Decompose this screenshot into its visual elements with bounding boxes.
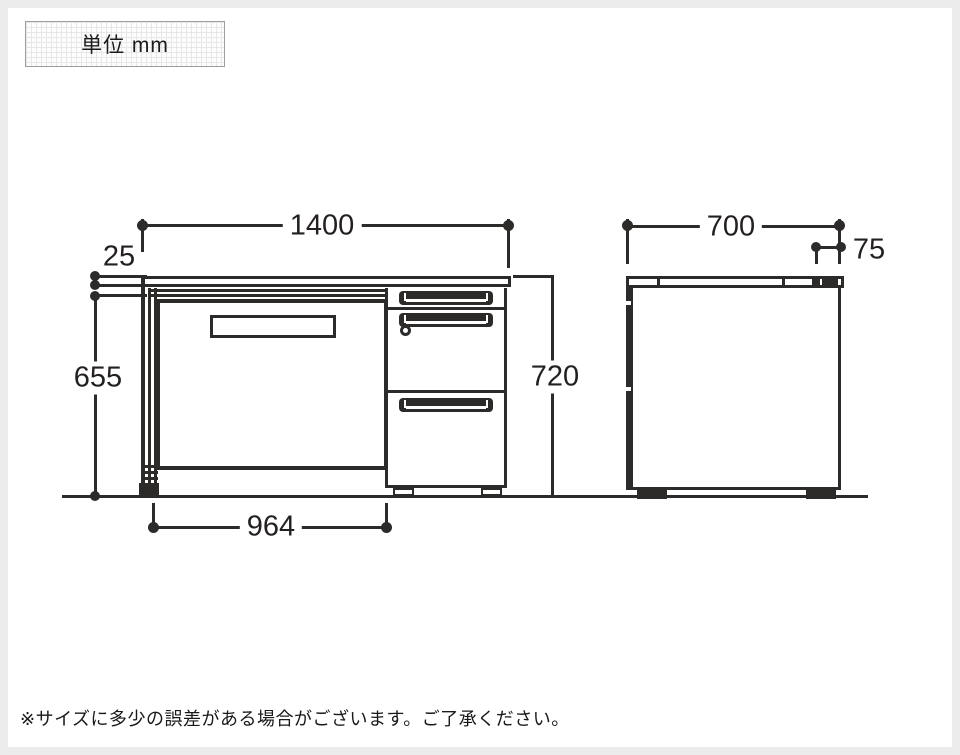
dim-964-dot-left [148, 522, 159, 533]
unit-label: 単位 mm [81, 29, 169, 59]
dim-964-label: 964 [240, 512, 302, 543]
handle-grip-slot [406, 299, 486, 302]
side-panel-back-edge [838, 288, 841, 490]
side-panel-front-edge [626, 288, 633, 490]
dim-720-label: 720 [528, 361, 582, 394]
handle-grip-slot [406, 406, 486, 409]
drawer-divider-2 [385, 390, 507, 393]
drawer-unit-right-edge [504, 288, 507, 488]
leg-outer-edge [141, 277, 145, 497]
panel-joint-notch [626, 387, 631, 391]
side-foot-left [637, 490, 667, 499]
dim-964-dot-right [381, 522, 392, 533]
floor-line [62, 495, 868, 498]
drawer-handle-3 [399, 398, 493, 412]
dim-75-dot-right [836, 242, 846, 252]
cable-slot [210, 315, 336, 338]
desktop-joint-2 [782, 276, 785, 288]
leg-adjuster-rung-2 [141, 471, 158, 474]
drawer-unit-left-edge [385, 288, 388, 488]
desktop-front [142, 276, 511, 287]
dim-700-ext-left [626, 219, 629, 264]
side-foot-right [806, 490, 836, 499]
drawer-handle-1 [399, 291, 493, 305]
panel-joint-notch [626, 301, 631, 305]
dim-25-label: 25 [101, 243, 137, 272]
rail-bottom-line [150, 294, 387, 297]
back-edge-slit [820, 279, 822, 285]
dim-75-label: 75 [851, 236, 887, 265]
dim-720-top-tick [513, 275, 554, 278]
dim-25-leader-top [95, 275, 147, 278]
dim-75-ext-left [815, 246, 818, 264]
handle-grip-slot [406, 321, 486, 324]
dim-1400-label: 1400 [283, 211, 362, 242]
leg-adjuster-rung-3 [141, 477, 158, 480]
handle-end-cap [486, 293, 488, 301]
handle-end-cap [486, 315, 488, 323]
drawer-divider-1 [385, 307, 507, 310]
dim-25-leader-bottom [95, 284, 147, 287]
dim-655-line [94, 296, 97, 497]
dim-1400-ext-left [141, 219, 144, 252]
drawer-handle-2 [399, 313, 493, 327]
desktop-joint-1 [657, 276, 660, 288]
dim-700-label: 700 [700, 212, 762, 243]
back-edge-block [812, 276, 838, 288]
handle-end-cap [486, 400, 488, 408]
unit-label-box: 単位 mm [25, 21, 225, 67]
dimension-diagram-page: 単位 mm 1400 25 655 [0, 0, 960, 755]
rail-top-line [150, 289, 387, 292]
size-disclaimer-text: ※サイズに多少の誤差がある場合がございます。ご了承ください。 [20, 705, 570, 731]
lock-keyhole [400, 325, 411, 336]
dim-655-label: 655 [71, 362, 125, 395]
dim-1400-ext-right [507, 219, 510, 268]
dim-655-leader-top [95, 294, 147, 297]
